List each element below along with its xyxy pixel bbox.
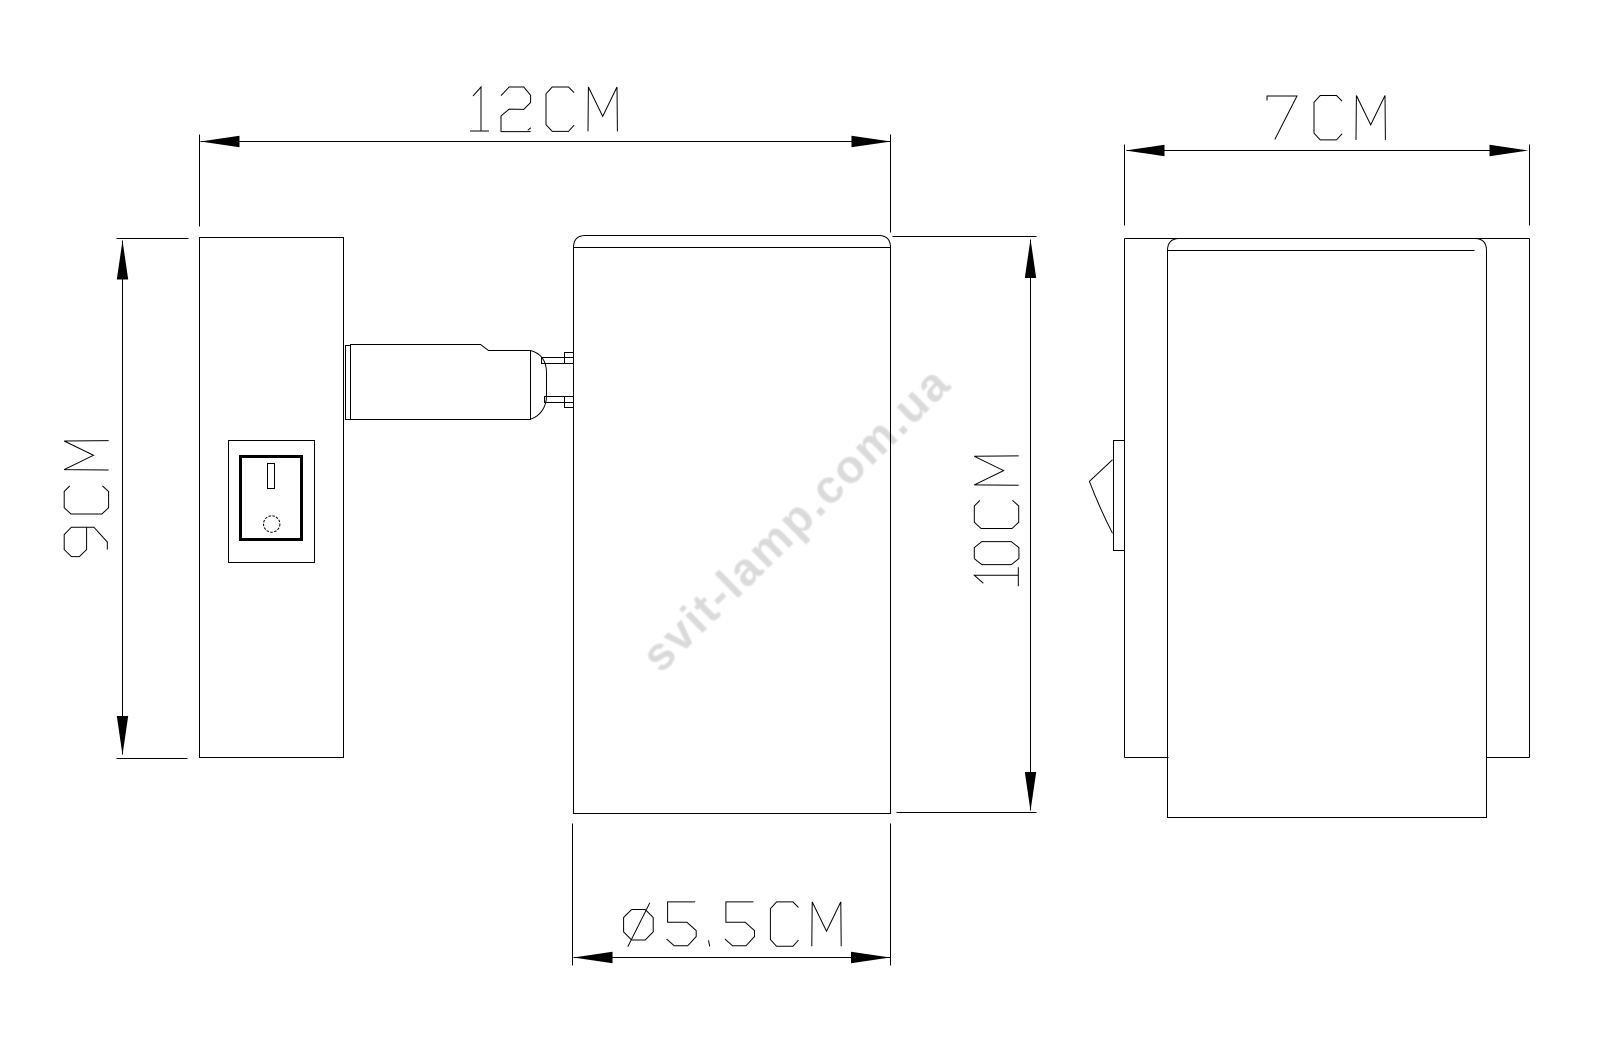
svg-text:svit-lamp.com.ua: svit-lamp.com.ua — [631, 356, 960, 682]
